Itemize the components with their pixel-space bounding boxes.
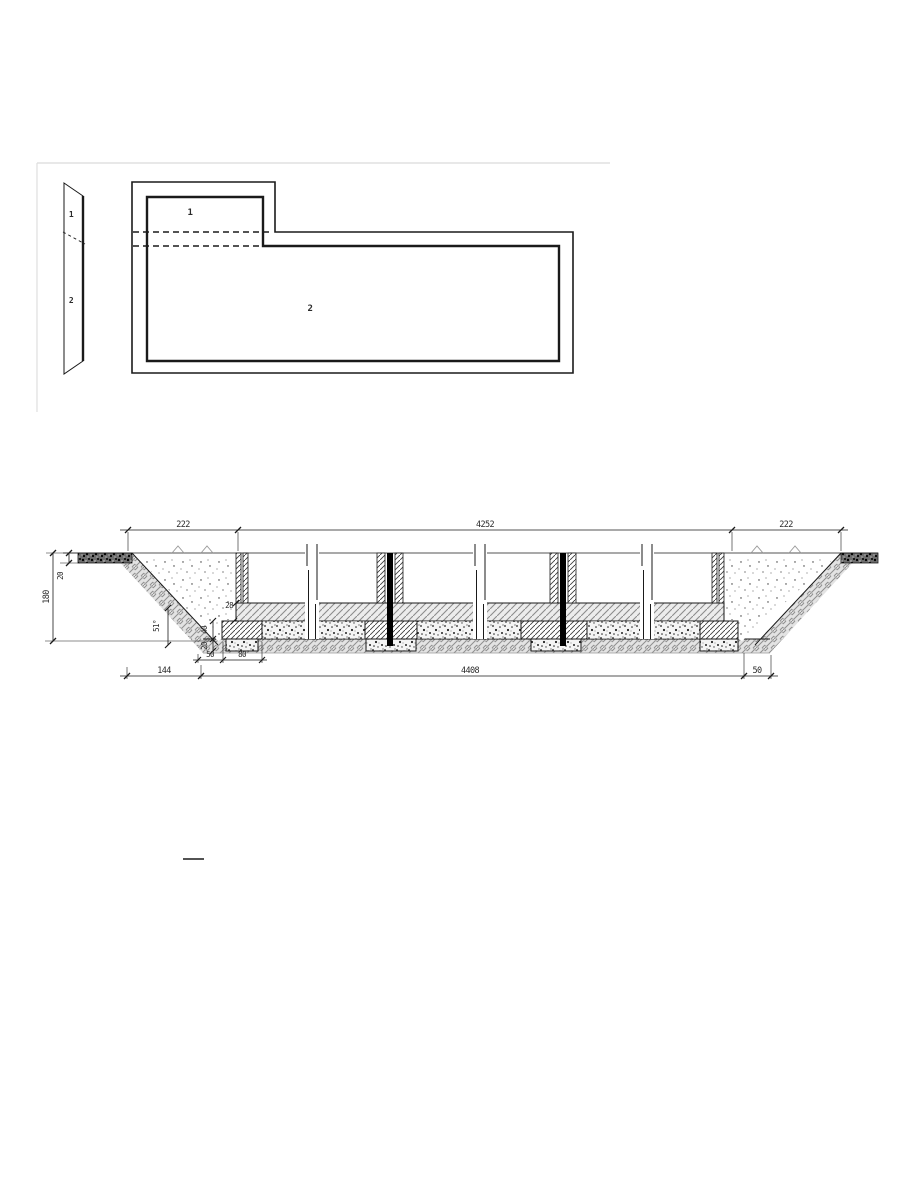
wall-3	[568, 553, 576, 603]
grade-mark	[789, 546, 801, 553]
footing-block-left	[222, 621, 262, 639]
concrete-infill	[653, 621, 700, 639]
subgrade-band	[203, 639, 770, 653]
dim-bottom-left: 144	[157, 666, 171, 676]
side-view-label-1: 1	[69, 210, 74, 219]
technical-drawing: 1 2 1 2	[0, 0, 918, 1188]
dim-footing-offset: 50	[206, 650, 215, 659]
concrete-infill	[486, 621, 521, 639]
drawing-page: 1 2 1 2	[0, 0, 918, 1188]
page-border	[37, 163, 610, 412]
wall-left	[243, 553, 248, 603]
footing-block-right	[700, 621, 738, 639]
dim-surface-layer: 20	[56, 571, 65, 580]
surface-strip-right	[841, 553, 878, 563]
dim-bottom-span: 4408	[461, 666, 480, 676]
side-view-label-2: 2	[69, 296, 74, 305]
dim-top-left: 222	[176, 520, 190, 530]
grade-mark	[172, 546, 184, 553]
plan-inner-outline	[147, 197, 559, 361]
dim-bottom-chain: 144 4408 50	[120, 653, 778, 679]
dim-depth: 180	[42, 590, 52, 604]
wall-2	[377, 553, 385, 603]
wall-left	[236, 553, 241, 603]
dim-pad-height: 20	[200, 641, 209, 650]
side-panel-outline	[64, 183, 83, 374]
dim-slope: 51°	[152, 620, 161, 632]
wall-2-core-bar	[387, 553, 393, 646]
side-panel-hidden-edge	[63, 232, 85, 244]
wall-right	[719, 553, 724, 603]
dim-bottom-right: 50	[752, 666, 762, 676]
plan-outer-outline	[132, 182, 573, 373]
wall-2	[395, 553, 403, 603]
dim-footing-height: 40	[200, 625, 209, 634]
concrete-infill	[318, 621, 365, 639]
plan-view: 1 2	[132, 182, 573, 373]
plan-area-2-label: 2	[308, 304, 313, 314]
plan-area-1-label: 1	[188, 208, 193, 218]
dim-footing-width: 80	[238, 650, 247, 659]
section-view: 222 4252 222 180 20 28 40 20 51°	[42, 520, 878, 679]
footing-pad-3	[531, 639, 581, 651]
dim-top-span: 4252	[476, 520, 495, 530]
footing-block-3	[521, 621, 587, 639]
grade-mark	[201, 546, 213, 553]
wall-3	[550, 553, 558, 603]
surface-strip-left	[78, 553, 132, 563]
dim-extension-lines	[127, 653, 771, 679]
side-view-panel: 1 2	[63, 183, 85, 374]
footing-pad-right	[700, 639, 738, 651]
grade-mark	[751, 546, 763, 553]
wall-right	[712, 553, 717, 603]
wall-3-core-bar	[560, 553, 566, 646]
dim-top-right: 222	[779, 520, 793, 530]
